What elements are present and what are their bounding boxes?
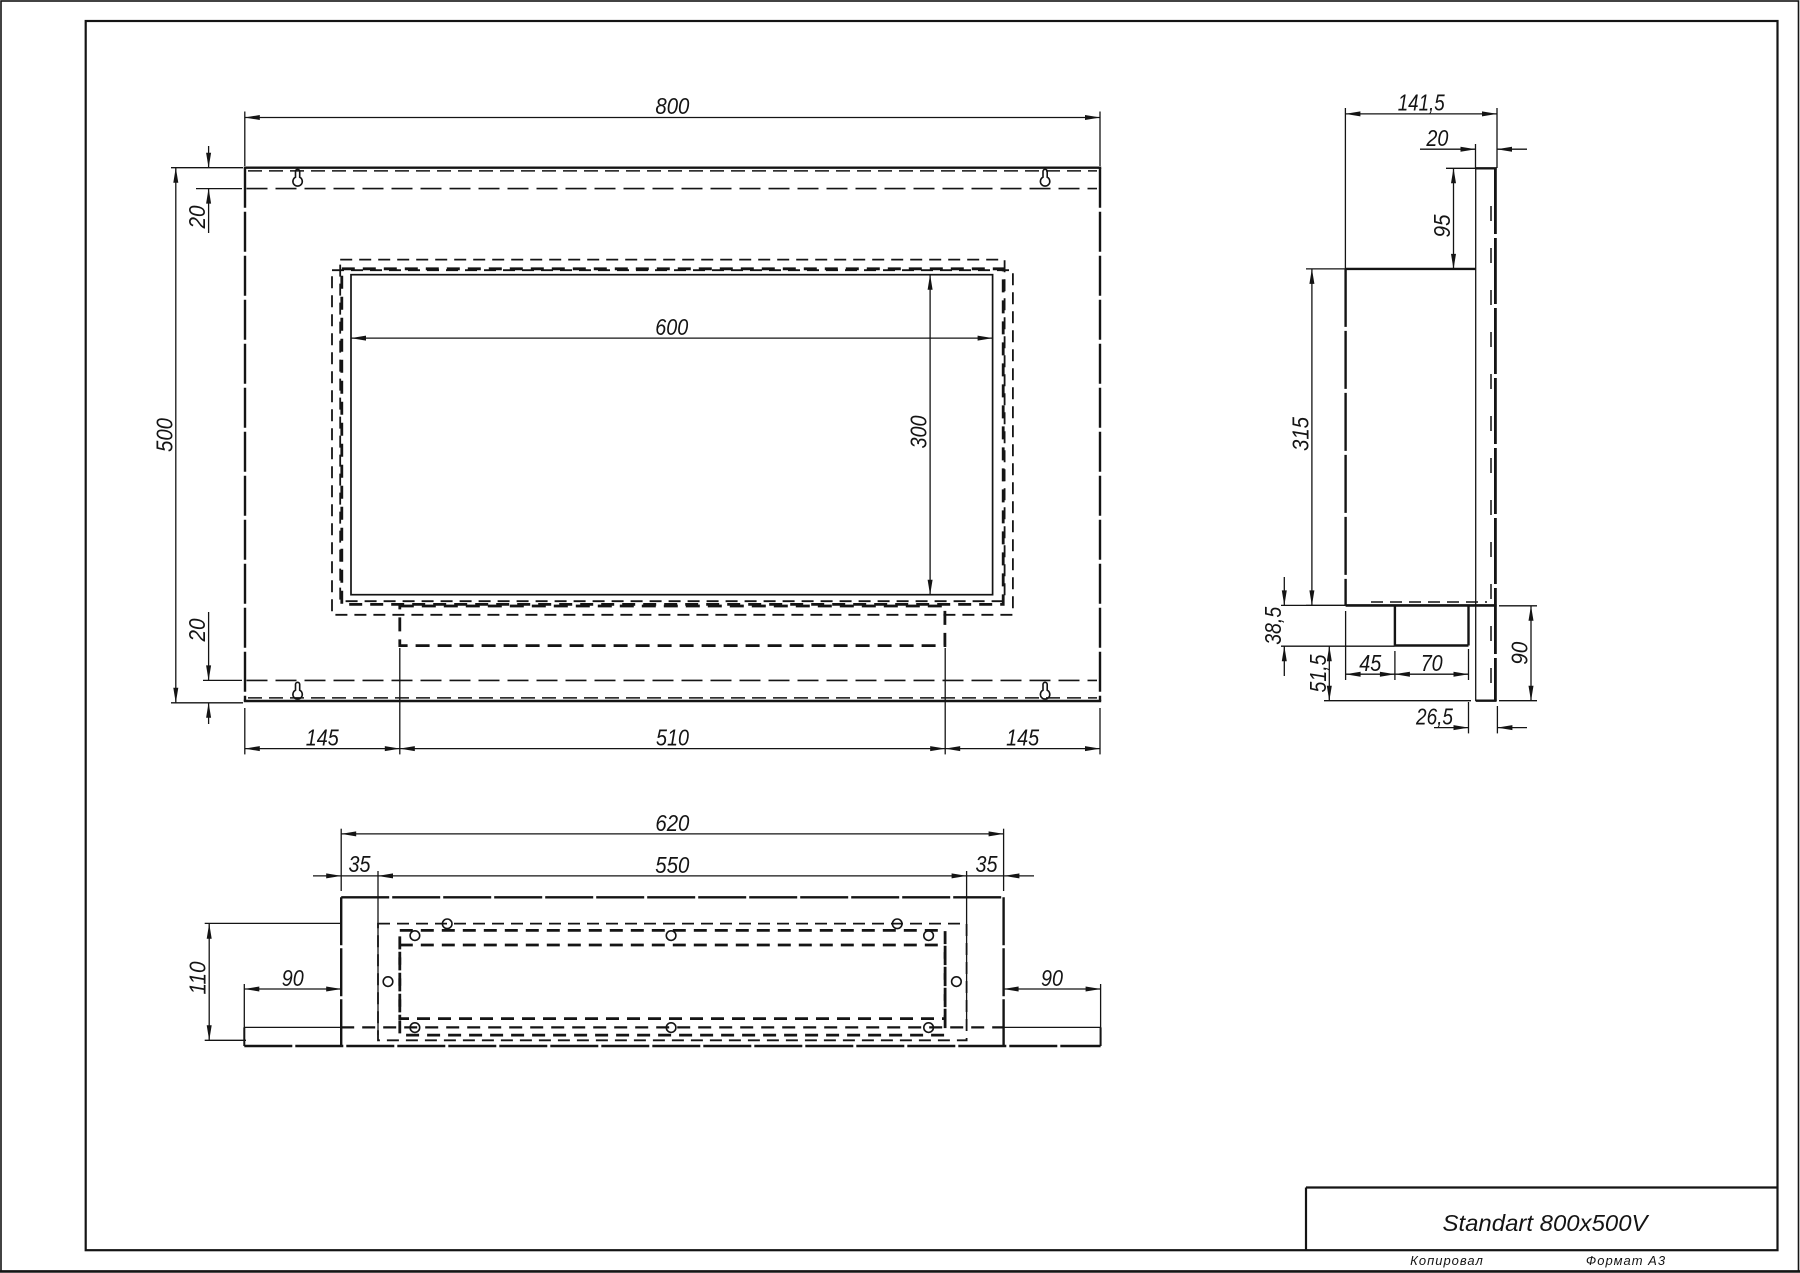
svg-text:600: 600	[655, 314, 688, 340]
svg-text:95: 95	[1429, 214, 1455, 237]
svg-text:70: 70	[1421, 650, 1443, 676]
svg-text:90: 90	[1507, 642, 1533, 665]
svg-text:620: 620	[655, 810, 689, 836]
svg-text:51,5: 51,5	[1305, 654, 1331, 692]
svg-text:141,5: 141,5	[1398, 90, 1445, 116]
svg-text:Копировал: Копировал	[1410, 1253, 1484, 1268]
svg-text:800: 800	[655, 93, 689, 119]
svg-text:20: 20	[184, 205, 210, 229]
svg-text:145: 145	[1006, 725, 1039, 751]
svg-text:20: 20	[184, 618, 210, 642]
svg-text:20: 20	[1426, 125, 1449, 151]
svg-text:Формат А3: Формат А3	[1586, 1253, 1666, 1268]
svg-text:300: 300	[906, 415, 932, 448]
svg-text:38,5: 38,5	[1260, 607, 1286, 645]
svg-text:45: 45	[1359, 650, 1381, 676]
svg-text:145: 145	[306, 725, 339, 751]
svg-text:550: 550	[655, 852, 689, 878]
svg-text:500: 500	[151, 418, 177, 452]
svg-text:315: 315	[1287, 417, 1313, 451]
svg-text:510: 510	[656, 725, 689, 751]
svg-text:90: 90	[282, 965, 304, 991]
svg-text:110: 110	[185, 961, 211, 994]
svg-text:35: 35	[349, 851, 371, 877]
svg-text:35: 35	[976, 851, 998, 877]
svg-text:Standart 800x500V: Standart 800x500V	[1443, 1210, 1651, 1236]
svg-text:90: 90	[1041, 965, 1063, 991]
svg-text:26,5: 26,5	[1415, 703, 1453, 729]
